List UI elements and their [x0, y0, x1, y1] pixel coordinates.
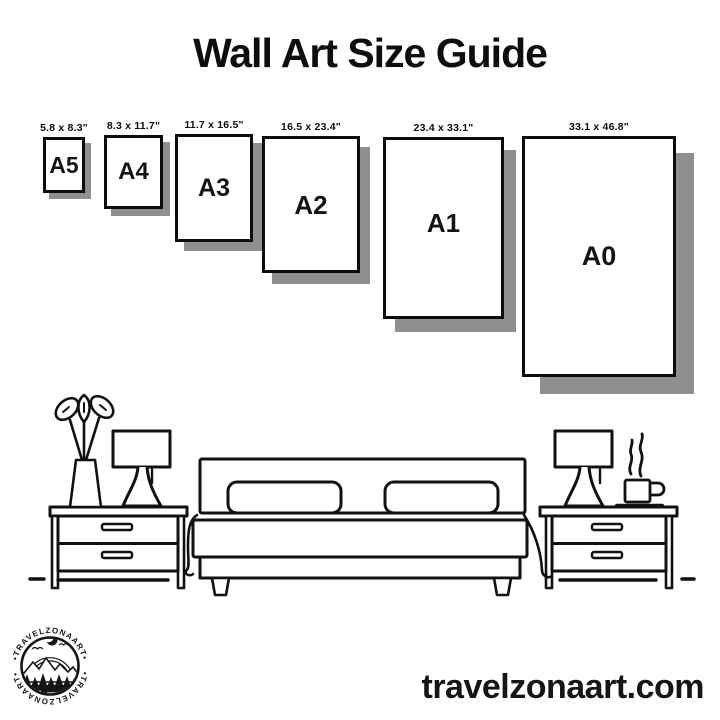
double-bed-icon: [186, 459, 552, 595]
website-url: travelzonaart.com: [422, 668, 705, 707]
paper-size-a5: 5.8 x 8.3" A5: [43, 137, 85, 193]
paper-name-label: A0: [582, 243, 617, 270]
paper-name-label: A5: [49, 154, 78, 177]
paper-name-label: A1: [427, 210, 460, 246]
page-title: Wall Art Size Guide: [0, 30, 720, 77]
paper-dimensions-label: 11.7 x 16.5": [184, 119, 243, 131]
paper-size-a4: 8.3 x 11.7" A4: [104, 135, 163, 209]
paper-name-label: A3: [198, 176, 230, 201]
coffee-cup-icon: [617, 434, 664, 506]
paper-dimensions-label: 8.3 x 11.7": [107, 120, 160, 132]
size-guide-poster: Wall Art Size Guide 5.8 x 8.3" A5 8.3 x …: [0, 0, 720, 720]
nightstand-left-icon: [50, 507, 187, 588]
bedroom-illustration: [0, 380, 720, 605]
table-lamp-right-icon: [555, 431, 612, 506]
paper-dimensions-label: 33.1 x 46.8": [569, 121, 629, 133]
table-lamp-left-icon: [113, 431, 170, 506]
bird-icon: [32, 648, 43, 650]
paper-dimensions-label: 23.4 x 33.1": [414, 122, 474, 134]
paper-size-a0: 33.1 x 46.8" A0: [522, 136, 676, 377]
mountains: [20, 658, 80, 682]
paper-size-a3: 11.7 x 16.5" A3: [175, 134, 253, 242]
potted-plant-icon: [52, 392, 118, 507]
paper-dimensions-label: 16.5 x 23.4": [281, 121, 341, 133]
paper-name-label: A2: [294, 192, 327, 218]
paper-dimensions-label: 5.8 x 8.3": [40, 122, 88, 134]
paper-size-a1: 23.4 x 33.1" A1: [383, 137, 504, 319]
paper-size-a2: 16.5 x 23.4" A2: [262, 136, 360, 273]
brand-logo: •TRAVELZONAART• •TRAVELZONAART•: [2, 618, 98, 714]
paper-name-label: A4: [118, 160, 149, 184]
nightstand-right-icon: [540, 507, 677, 588]
